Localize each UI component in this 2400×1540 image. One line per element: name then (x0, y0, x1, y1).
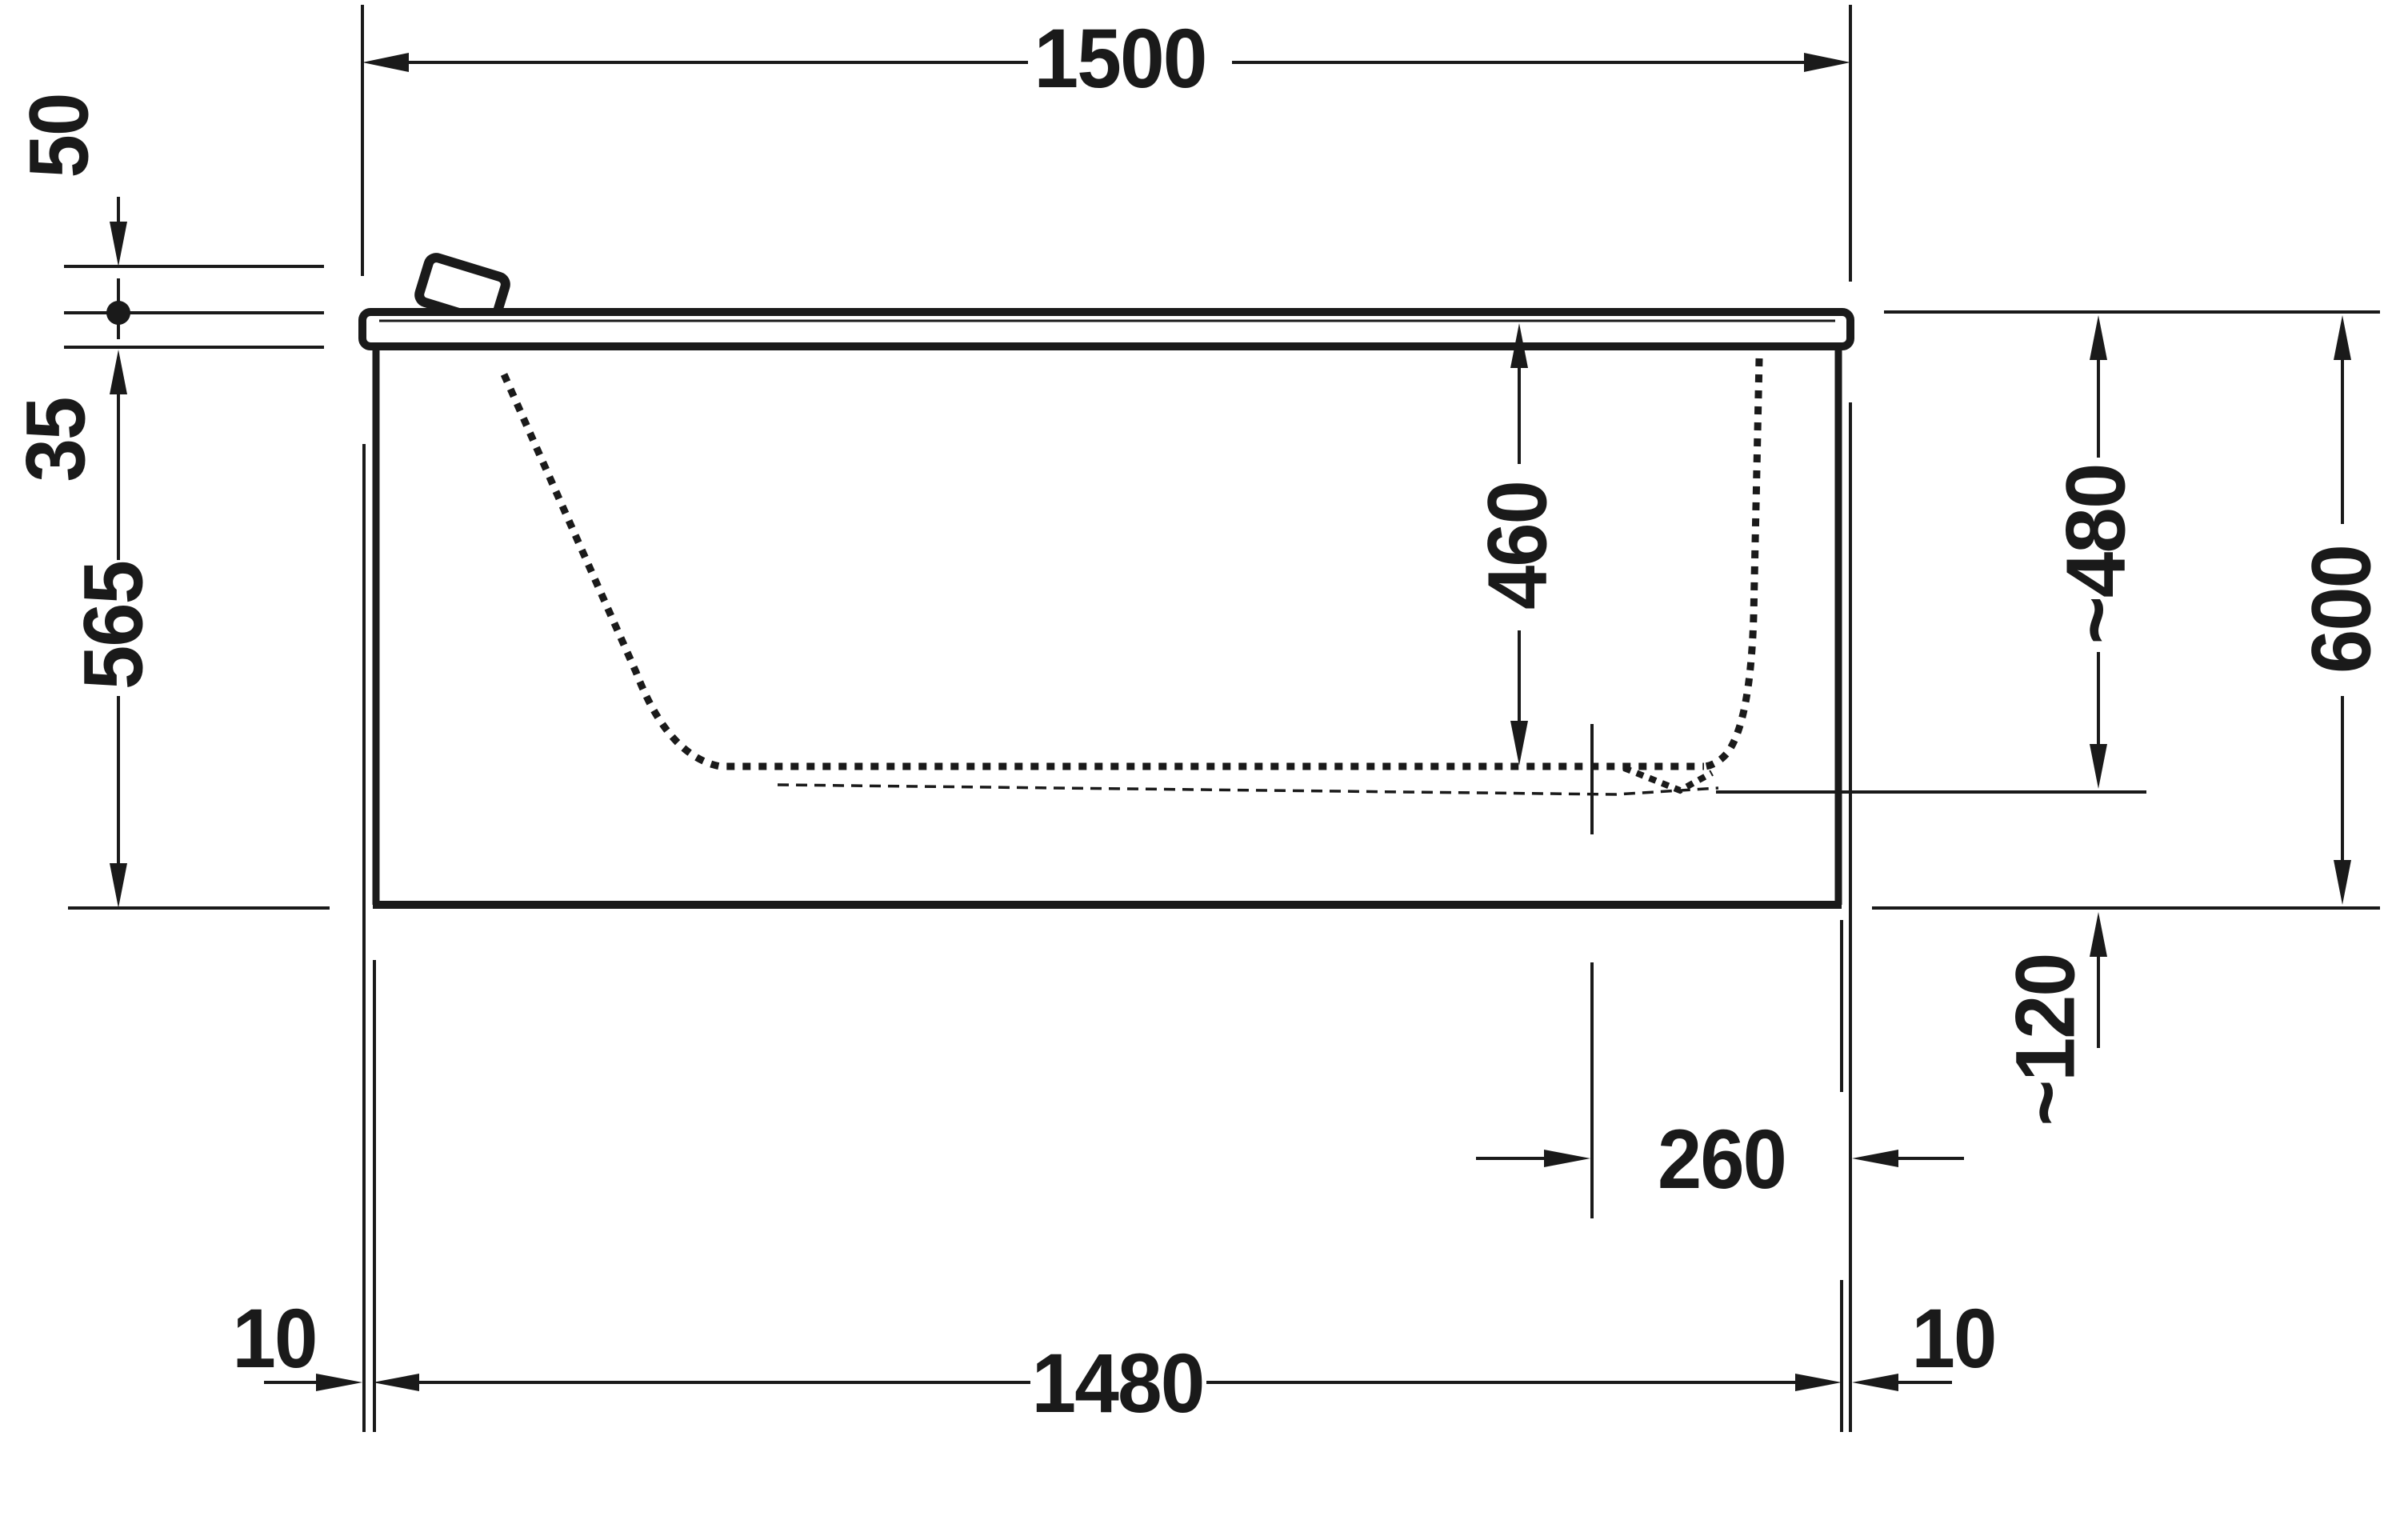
dim-body-length: 1480 (373, 1337, 1842, 1430)
drawing-sheet: 1500 50 35 565 (0, 0, 2400, 1540)
dim-label-overall-height: 600 (2295, 546, 2389, 674)
tub-rim (362, 312, 1850, 346)
tub-inner-shell (504, 358, 1759, 794)
dim-approx-outlet-height: ~120 (1999, 912, 2108, 1126)
arrowhead-up-icon (2090, 912, 2107, 957)
dim-label-inner-depth: 460 (1471, 482, 1565, 610)
dim-label-rim-thickness: 35 (10, 398, 103, 482)
arrowhead-down-icon (1510, 721, 1528, 766)
dim-approx-water-level: ~480 (2050, 315, 2143, 789)
inner-wall-dotted-right (1706, 358, 1759, 766)
shell-underside-dashed (778, 785, 1718, 794)
dim-overall-height: 600 (2295, 315, 2389, 905)
arrowhead-up-icon (2334, 315, 2351, 360)
dim-label-overhang-left: 10 (233, 1292, 317, 1386)
arrowhead-left-icon (1852, 1374, 1898, 1391)
left-reference-block: 50 35 (10, 94, 325, 561)
arrowhead-up-icon (110, 350, 127, 394)
arrowhead-right-icon (316, 1374, 362, 1391)
dim-drain-to-end: 260 (1476, 1113, 1964, 1206)
arrowhead-left-icon (373, 1374, 419, 1391)
arrowhead-right-icon (1544, 1150, 1590, 1167)
dim-overall-length: 1500 (362, 5, 1850, 282)
dim-label-approx-outlet-height: ~120 (1999, 954, 2093, 1126)
dim-overhang-right: 10 (1852, 1292, 1996, 1391)
arrowhead-down-icon (2090, 744, 2107, 789)
arrowhead-up-icon (2090, 315, 2107, 360)
dim-overhang-left: 10 (233, 1292, 363, 1391)
dim-label-drain-to-end: 260 (1658, 1113, 1786, 1206)
arrowhead-right-icon (1804, 53, 1850, 72)
arrowhead-down-icon (2334, 860, 2351, 905)
dim-label-overall-length: 1500 (1034, 12, 1206, 106)
drain-recess-dotted (1624, 768, 1712, 790)
dim-inner-depth: 460 (1471, 323, 1565, 766)
dim-below-rim-height: 565 (67, 562, 330, 908)
arrowhead-left-icon (362, 53, 409, 72)
dim-label-approx-water-level: ~480 (2050, 465, 2143, 645)
arrowhead-left-icon (1852, 1150, 1898, 1167)
dim-label-rim-top-offset: 50 (13, 94, 106, 178)
dim-label-overhang-right: 10 (1912, 1292, 1996, 1386)
dim-label-below-rim-height: 565 (67, 562, 161, 690)
arrowhead-right-icon (1795, 1374, 1842, 1391)
bathtub-technical-drawing: 1500 50 35 565 (0, 0, 2400, 1540)
tub-outline (362, 256, 1850, 905)
arrowhead-down-icon (110, 863, 127, 908)
dim-label-body-length: 1480 (1032, 1337, 1204, 1430)
